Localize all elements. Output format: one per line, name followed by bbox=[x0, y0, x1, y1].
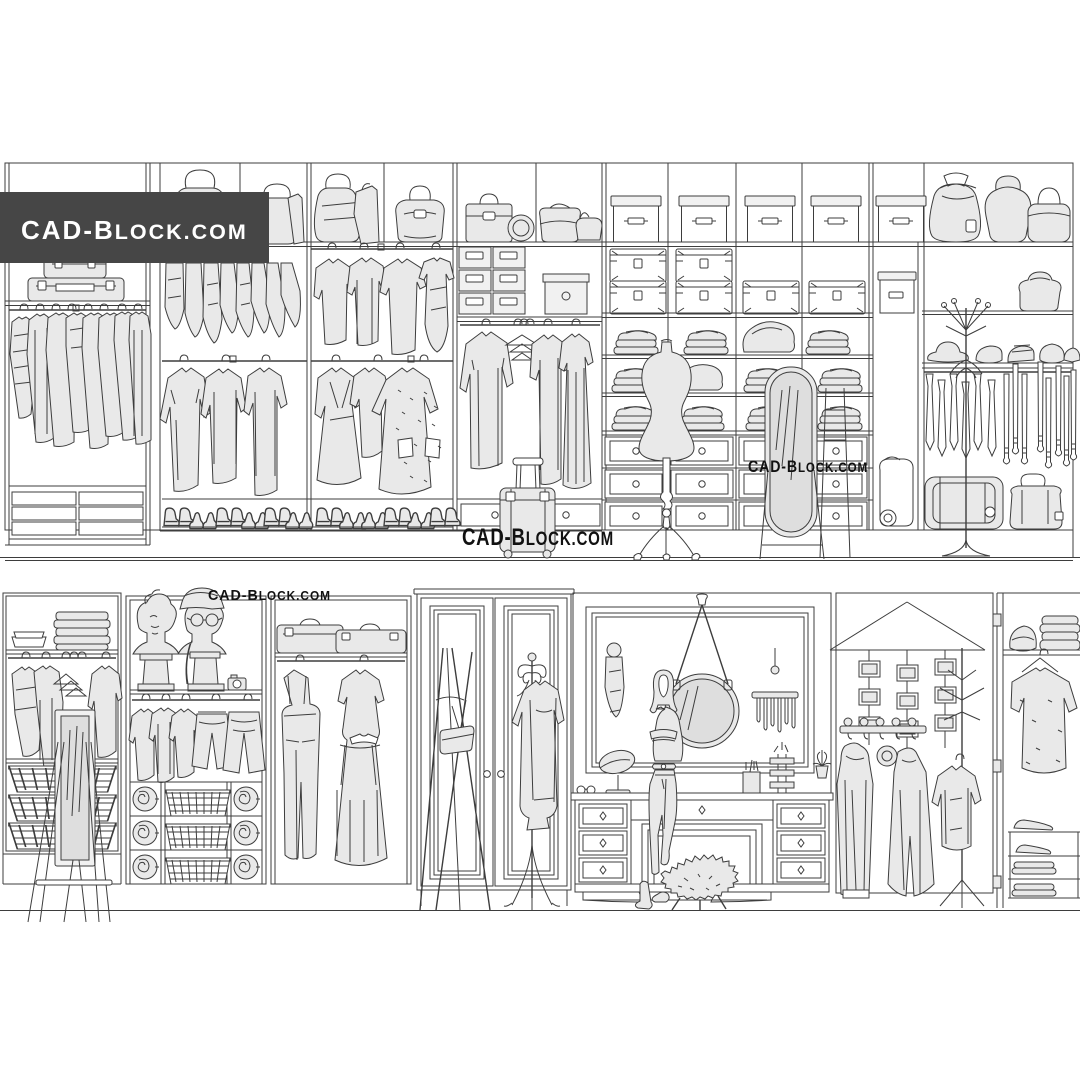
svg-text:CAD-BLOCK.COM: CAD-BLOCK.COM bbox=[748, 458, 868, 476]
svg-text:CAD-BLOCK.COM: CAD-BLOCK.COM bbox=[21, 215, 248, 245]
svg-text:CAD-BLOCK.COM: CAD-BLOCK.COM bbox=[462, 524, 614, 551]
svg-text:CAD-BLOCK.COM: CAD-BLOCK.COM bbox=[208, 587, 331, 604]
